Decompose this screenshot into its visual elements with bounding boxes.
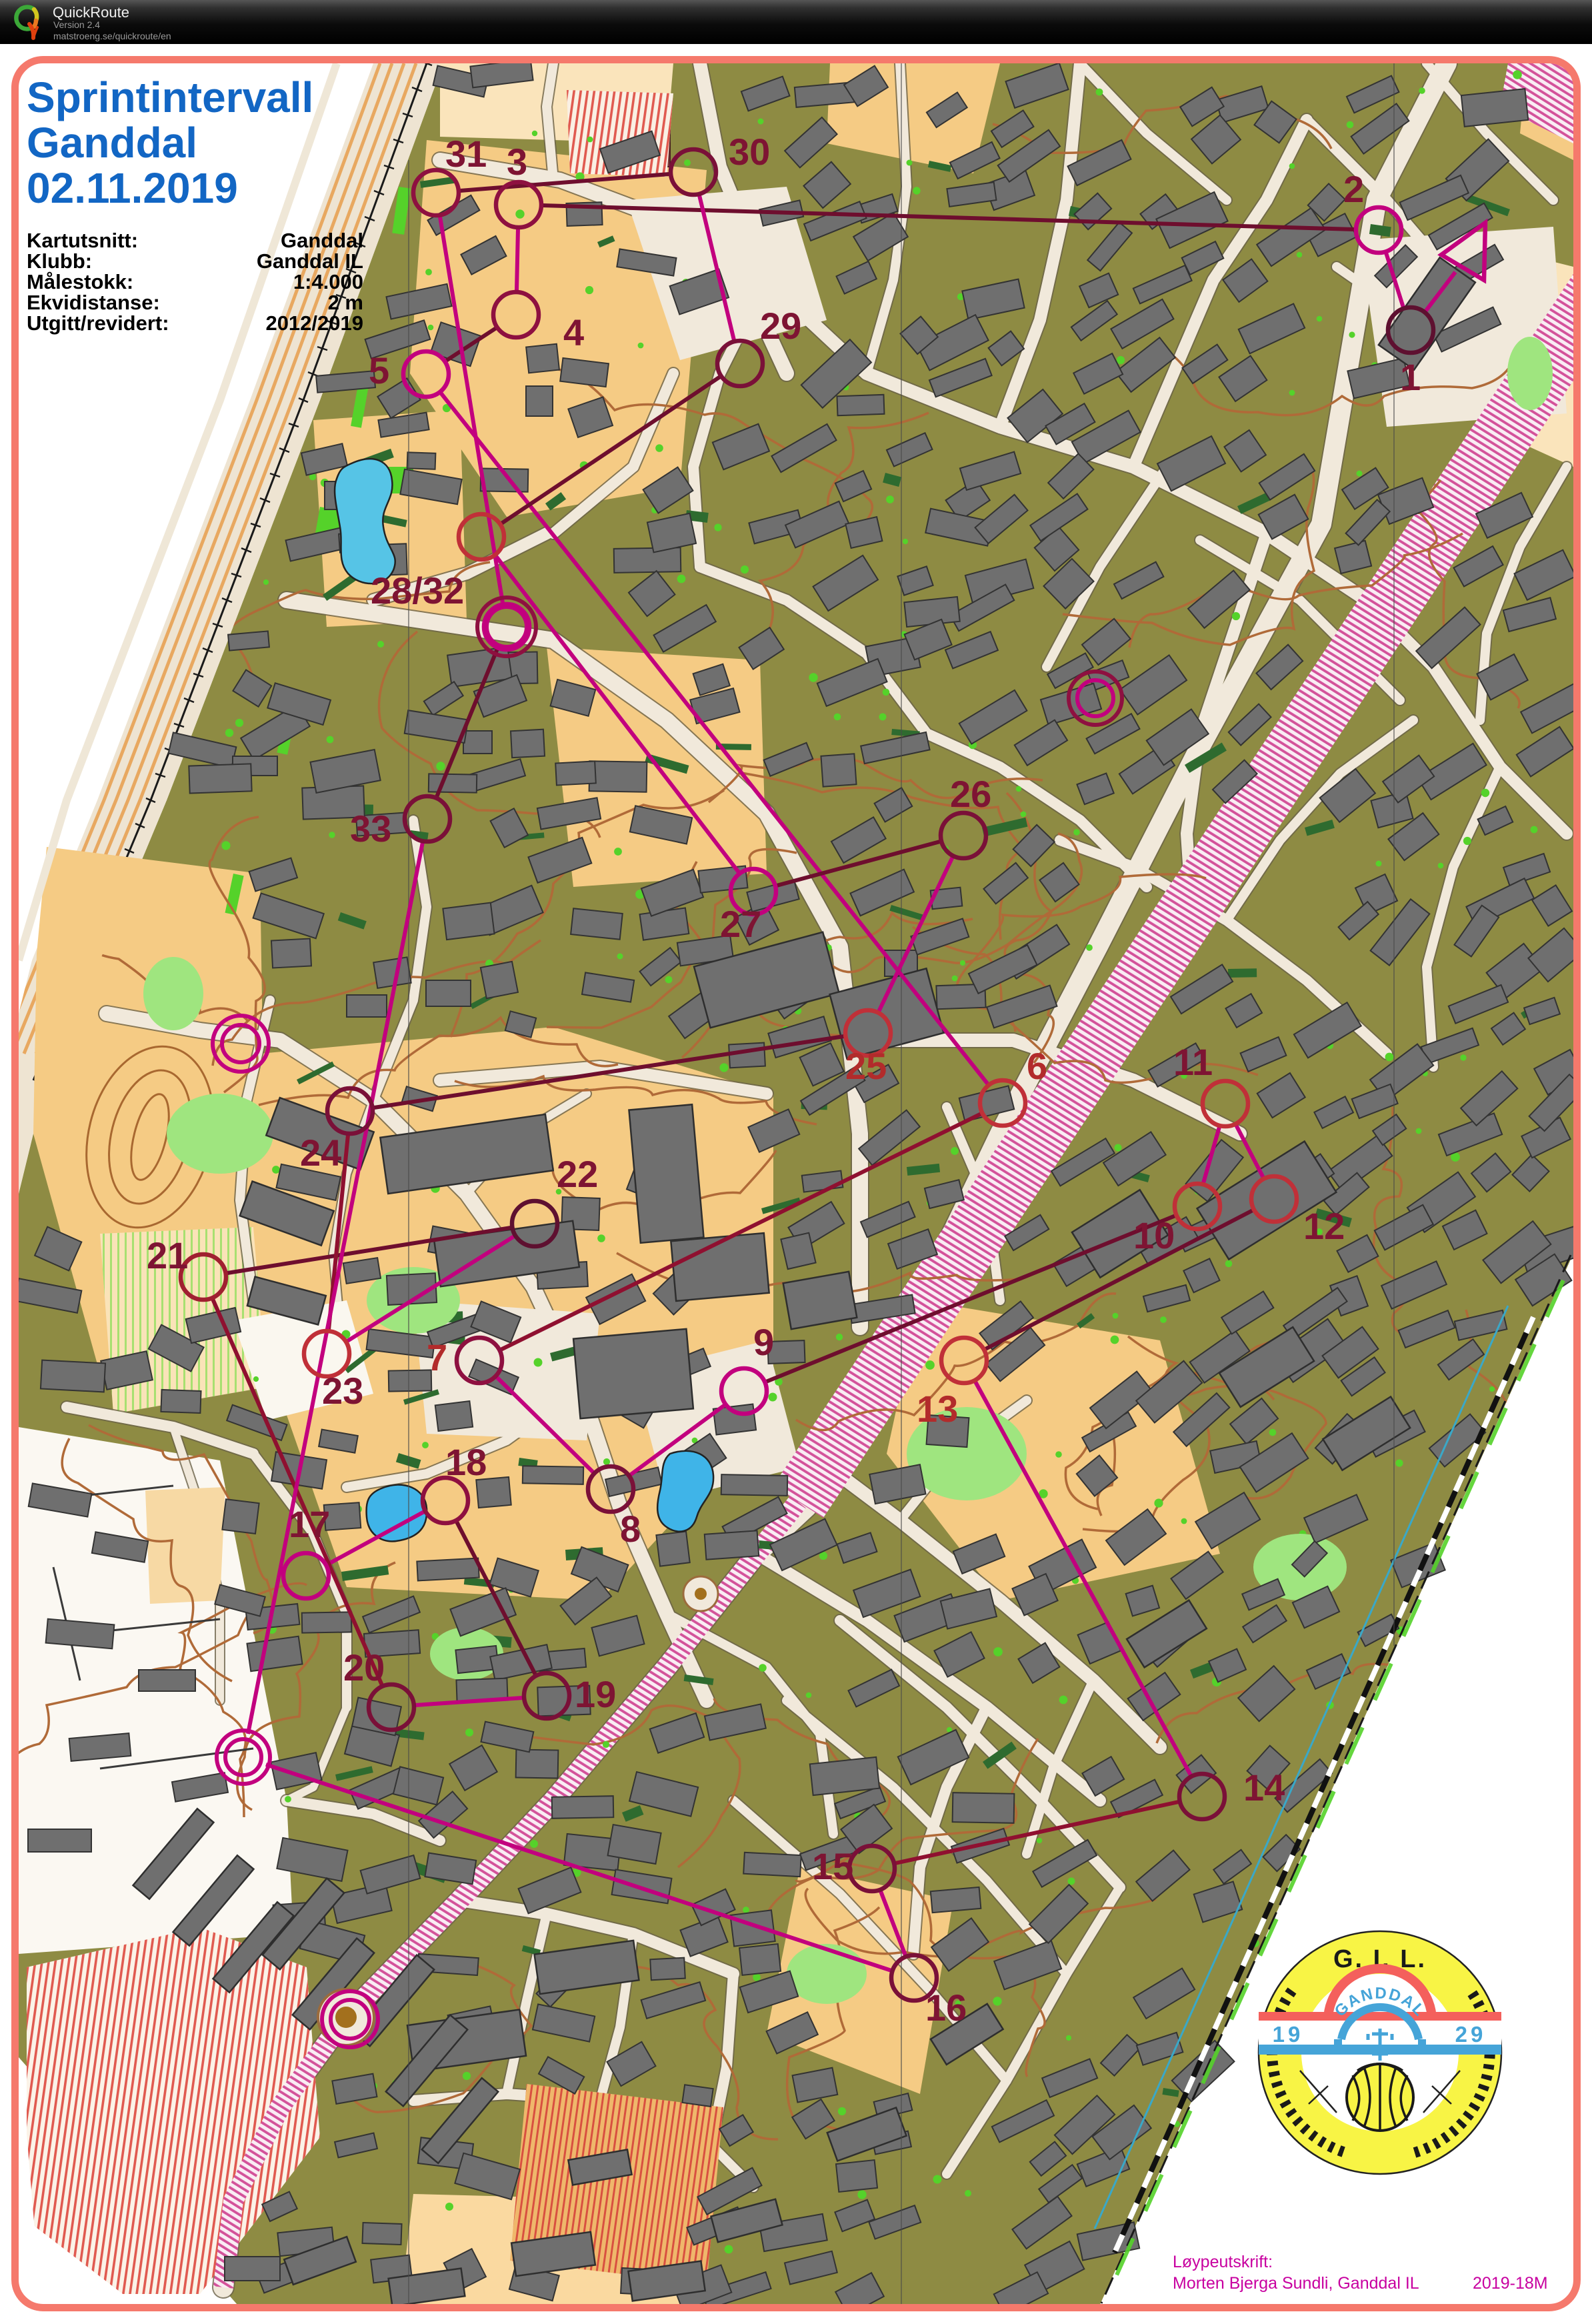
svg-text:26: 26 <box>950 773 991 815</box>
svg-text:Målestokk:: Målestokk: <box>27 270 133 293</box>
svg-text:30: 30 <box>729 131 770 173</box>
svg-text:8: 8 <box>620 1508 641 1550</box>
svg-text:29: 29 <box>760 305 801 347</box>
svg-text:Kartutsnitt:: Kartutsnitt: <box>27 229 138 252</box>
svg-text:2012/2019: 2012/2019 <box>265 311 363 335</box>
svg-text:11: 11 <box>1173 1041 1213 1083</box>
svg-text:23: 23 <box>322 1370 363 1412</box>
svg-text:25: 25 <box>845 1045 887 1087</box>
svg-text:6: 6 <box>1027 1045 1047 1087</box>
svg-text:19: 19 <box>575 1673 616 1715</box>
svg-text:3: 3 <box>507 141 527 183</box>
svg-text:Sprintintervall: Sprintintervall <box>27 73 313 121</box>
svg-text:12: 12 <box>1303 1205 1345 1247</box>
svg-text:Ganddal: Ganddal <box>281 229 363 252</box>
svg-text:Ekvidistanse:: Ekvidistanse: <box>27 291 160 314</box>
svg-text:9: 9 <box>753 1321 774 1363</box>
svg-text:1:4.000: 1:4.000 <box>293 270 363 293</box>
svg-text:1: 1 <box>1400 356 1421 398</box>
svg-text:22: 22 <box>557 1153 598 1195</box>
svg-text:7: 7 <box>427 1336 447 1378</box>
svg-text:10: 10 <box>1133 1214 1175 1256</box>
svg-text:20: 20 <box>343 1646 385 1688</box>
svg-text:2019-18M: 2019-18M <box>1473 2274 1548 2293</box>
svg-text:28/32: 28/32 <box>371 569 464 612</box>
svg-text:Ganddal: Ganddal <box>27 119 197 167</box>
svg-text:29: 29 <box>1455 2022 1487 2047</box>
svg-text:4: 4 <box>563 311 584 353</box>
svg-text:Klubb:: Klubb: <box>27 249 92 273</box>
svg-text:15: 15 <box>812 1845 853 1887</box>
svg-text:Utgitt/revidert:: Utgitt/revidert: <box>27 311 169 335</box>
svg-text:13: 13 <box>917 1388 958 1430</box>
svg-text:QuickRoute: QuickRoute <box>53 4 129 21</box>
svg-text:5: 5 <box>369 349 389 391</box>
svg-text:14: 14 <box>1243 1767 1285 1809</box>
svg-text:31: 31 <box>445 133 487 175</box>
svg-text:02.11.2019: 02.11.2019 <box>27 164 238 212</box>
svg-text:Ganddal IL: Ganddal IL <box>257 249 363 273</box>
svg-text:17: 17 <box>289 1503 330 1545</box>
svg-text:18: 18 <box>445 1441 487 1483</box>
svg-text:Version 2.4: Version 2.4 <box>53 19 100 30</box>
svg-text:2: 2 <box>1343 168 1364 210</box>
svg-text:19: 19 <box>1273 2022 1304 2047</box>
svg-text:Løypeutskrift:: Løypeutskrift: <box>1173 2253 1273 2271</box>
svg-text:matstroeng.se/quickroute/en: matstroeng.se/quickroute/en <box>53 31 171 41</box>
svg-text:Morten Bjerga Sundli, Ganddal: Morten Bjerga Sundli, Ganddal IL <box>1173 2274 1419 2293</box>
svg-text:21: 21 <box>147 1234 188 1276</box>
svg-text:27: 27 <box>720 903 761 945</box>
svg-text:2 m: 2 m <box>328 291 363 314</box>
svg-text:33: 33 <box>350 808 391 850</box>
svg-text:16: 16 <box>925 1987 967 2029</box>
svg-text:24: 24 <box>300 1132 341 1174</box>
